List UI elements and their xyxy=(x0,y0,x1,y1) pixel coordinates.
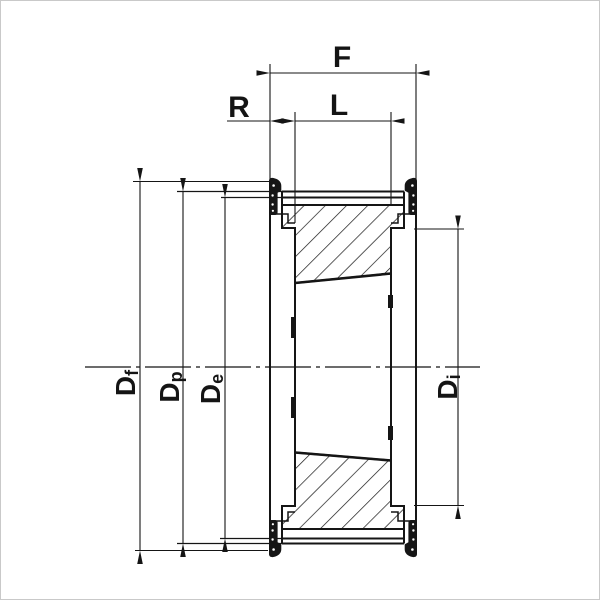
label-L-text: L xyxy=(330,91,348,121)
lower-section-hatch xyxy=(282,453,404,530)
flange-top-right xyxy=(405,178,417,215)
dim-label-Df: Df xyxy=(108,343,144,423)
label-Df-sub: f xyxy=(123,370,141,376)
label-F-text: F xyxy=(333,43,351,73)
label-Df-main: D xyxy=(112,376,140,396)
dim-label-Dp: Dp xyxy=(152,347,188,427)
label-De-main: D xyxy=(197,384,225,404)
label-Di-main: D xyxy=(434,379,462,399)
dim-label-R: R xyxy=(209,92,269,124)
dim-label-F: F xyxy=(312,42,372,74)
label-Dp-sub: p xyxy=(167,371,185,382)
pulley-drawing-canvas: F L R Df Dp De Di xyxy=(0,0,600,600)
flange-top-left xyxy=(269,178,281,215)
dim-label-De: De xyxy=(193,349,229,429)
upper-section-hatch xyxy=(282,205,404,283)
dim-label-Di: Di xyxy=(430,347,466,427)
label-Di-sub: i xyxy=(445,374,463,379)
label-Dp-main: D xyxy=(156,382,184,402)
flange-bottom-right xyxy=(405,520,417,557)
label-De-sub: e xyxy=(208,374,226,384)
dim-label-L: L xyxy=(309,90,369,122)
label-R-text: R xyxy=(228,93,250,123)
pulley-section-drawing xyxy=(0,0,600,600)
